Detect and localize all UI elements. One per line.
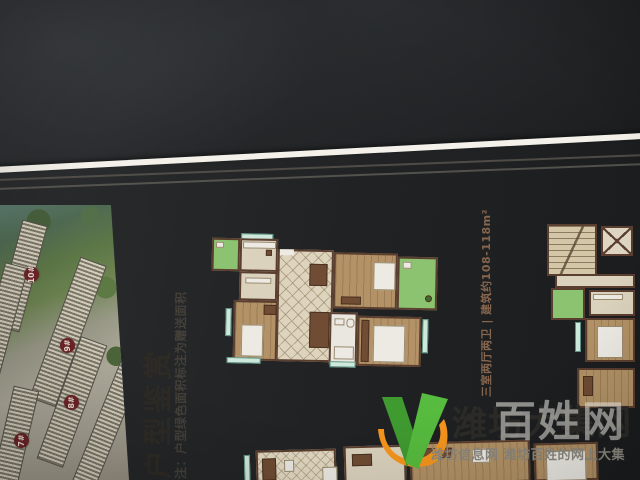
aerial-masterplan-image: 10# 9# 8# 7# — [0, 205, 129, 480]
photo-of-brochure: 10# 9# 8# 7# 户型鉴赏 注：户型绿色面积标注为赠送面积 三室两厅两卫… — [0, 0, 640, 480]
doorway — [280, 249, 294, 255]
kitchen-counter — [593, 294, 623, 300]
toilet — [346, 318, 354, 327]
secondary-floorplan — [545, 210, 640, 410]
main-floorplan — [202, 218, 443, 375]
bay-window — [225, 308, 232, 336]
bathroom — [329, 312, 358, 365]
study-room — [239, 271, 278, 301]
building-label: 8# — [67, 396, 76, 408]
window-sill — [330, 361, 356, 368]
bed — [241, 324, 264, 356]
balcony — [212, 238, 241, 272]
building-badge-7: 7# — [14, 433, 29, 448]
furniture — [262, 458, 277, 480]
desk — [245, 277, 271, 284]
living-dining-room — [276, 249, 334, 362]
sink — [334, 318, 344, 325]
fixture — [322, 467, 337, 480]
bathtub — [334, 346, 354, 359]
stove — [266, 250, 272, 256]
kitchen — [240, 238, 279, 272]
plant — [425, 295, 432, 302]
building-label: 10# — [27, 266, 36, 284]
bed — [373, 262, 396, 290]
bedroom — [585, 318, 635, 362]
bed — [373, 325, 406, 363]
elevator-shaft — [601, 226, 633, 256]
faint-watermark: 百姓网 — [494, 388, 626, 449]
window-sill — [244, 455, 251, 480]
tv-cabinet — [309, 312, 330, 348]
page-note: 注：户型绿色面积标注为赠送面积 — [172, 291, 189, 479]
building-label: 7# — [17, 434, 26, 446]
bedroom-right — [357, 316, 422, 367]
dining-table — [309, 264, 327, 286]
wardrobe — [264, 305, 277, 315]
wardrobe — [361, 320, 370, 362]
site-logo-icon — [374, 391, 450, 479]
page-title: 户型鉴赏 — [135, 347, 177, 479]
corridor — [555, 274, 635, 288]
window-sill — [422, 319, 429, 353]
planter — [403, 262, 412, 269]
window-sill — [227, 357, 261, 364]
bedroom-left — [233, 300, 278, 361]
window-sill — [575, 322, 581, 352]
balcony — [551, 288, 585, 320]
building-badge-10: 10# — [24, 267, 39, 282]
kitchen-counter — [243, 241, 276, 249]
picture-frame — [284, 460, 294, 472]
kitchen — [589, 290, 635, 316]
building-badge-8: 8# — [64, 395, 79, 410]
stairwell — [547, 224, 597, 276]
floorplan-spec: 三室两厅两卫 | 建筑约108-118m² — [478, 209, 494, 397]
building-badge-9: 9# — [60, 338, 75, 353]
bedroom-top — [333, 252, 398, 309]
bed — [597, 326, 623, 358]
furniture — [352, 454, 372, 467]
building-label: 9# — [63, 339, 72, 351]
planter — [216, 242, 224, 248]
balcony — [397, 257, 438, 311]
dresser — [341, 296, 361, 304]
